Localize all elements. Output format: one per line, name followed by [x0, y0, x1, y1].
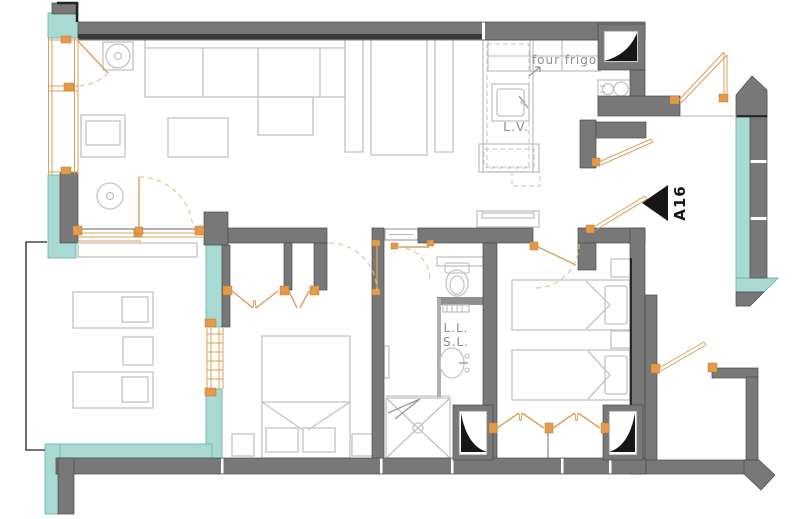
- terrace-outline: [26, 242, 47, 450]
- nightstand: [352, 434, 373, 456]
- pillow: [303, 428, 335, 452]
- closet-bifold-doors: [223, 286, 319, 308]
- dryer-label: S.L.: [443, 335, 469, 349]
- nightstand: [611, 259, 632, 277]
- vestibule-door: [586, 196, 647, 233]
- pillow: [605, 356, 627, 394]
- washing-machine-label: L.L.: [444, 321, 469, 335]
- niche-wall: [437, 298, 441, 398]
- cellar-door: [651, 342, 717, 373]
- toilet: [445, 263, 469, 296]
- door-swing: [135, 177, 193, 234]
- shower-screen: [388, 399, 420, 413]
- speaker-icon: [97, 183, 123, 209]
- corridor-glazing: [736, 278, 778, 292]
- wall: [372, 228, 384, 460]
- window: [48, 13, 78, 38]
- oven-label: four: [532, 53, 560, 67]
- washbasin: [440, 348, 469, 378]
- window: [45, 444, 212, 458]
- sink: [492, 84, 529, 121]
- bedroom-1: [232, 336, 373, 458]
- coffee-table: [168, 118, 228, 157]
- window: [206, 245, 222, 327]
- cellar-wall: [645, 295, 657, 460]
- vestibule-door: [592, 139, 653, 166]
- closet-bifold-doors: [489, 413, 609, 433]
- fridge-label: frigo: [565, 53, 597, 67]
- pillow: [266, 428, 298, 452]
- entrance-arrow-icon: [642, 185, 668, 221]
- walls: [26, 3, 775, 514]
- speaker-box-icon: [103, 42, 133, 70]
- nightstand: [611, 331, 632, 348]
- floor-plan-drawing: four frigo L.V. L.L. S.L. A16: [0, 0, 800, 519]
- entry-door: [670, 52, 728, 104]
- living-room: [81, 33, 453, 209]
- wall: [56, 458, 646, 474]
- nightstand: [232, 434, 254, 456]
- double-bed: [262, 336, 350, 458]
- door-swing: [391, 240, 434, 280]
- glazed-wall-west: [49, 36, 79, 175]
- speaker-icon: [106, 44, 130, 68]
- french-window: [205, 319, 223, 396]
- sofa: [145, 33, 345, 135]
- side-table: [123, 337, 153, 365]
- corridor-glazing: [736, 117, 750, 278]
- wall-chamfer: [744, 460, 775, 490]
- shower: [386, 396, 450, 458]
- bench: [435, 38, 453, 152]
- floor-plan: four frigo L.V. L.L. S.L. A16: [0, 0, 800, 519]
- shaft: [453, 405, 493, 460]
- glazing: [45, 13, 778, 514]
- vent-grille-icon: [443, 305, 469, 312]
- bench: [345, 38, 363, 152]
- single-bed: [512, 350, 630, 400]
- dining-set: [345, 38, 453, 155]
- single-bed: [512, 280, 630, 330]
- pillow: [605, 286, 627, 324]
- unit-label: A16: [671, 185, 689, 220]
- towel-rail: [384, 346, 389, 378]
- armchair: [81, 115, 125, 157]
- corridor-wall: [750, 95, 767, 278]
- partition: [437, 297, 483, 305]
- door-swing: [530, 242, 579, 288]
- dishwasher-label: L.V.: [503, 119, 529, 134]
- dining-table: [371, 38, 427, 155]
- terrace: [73, 292, 153, 408]
